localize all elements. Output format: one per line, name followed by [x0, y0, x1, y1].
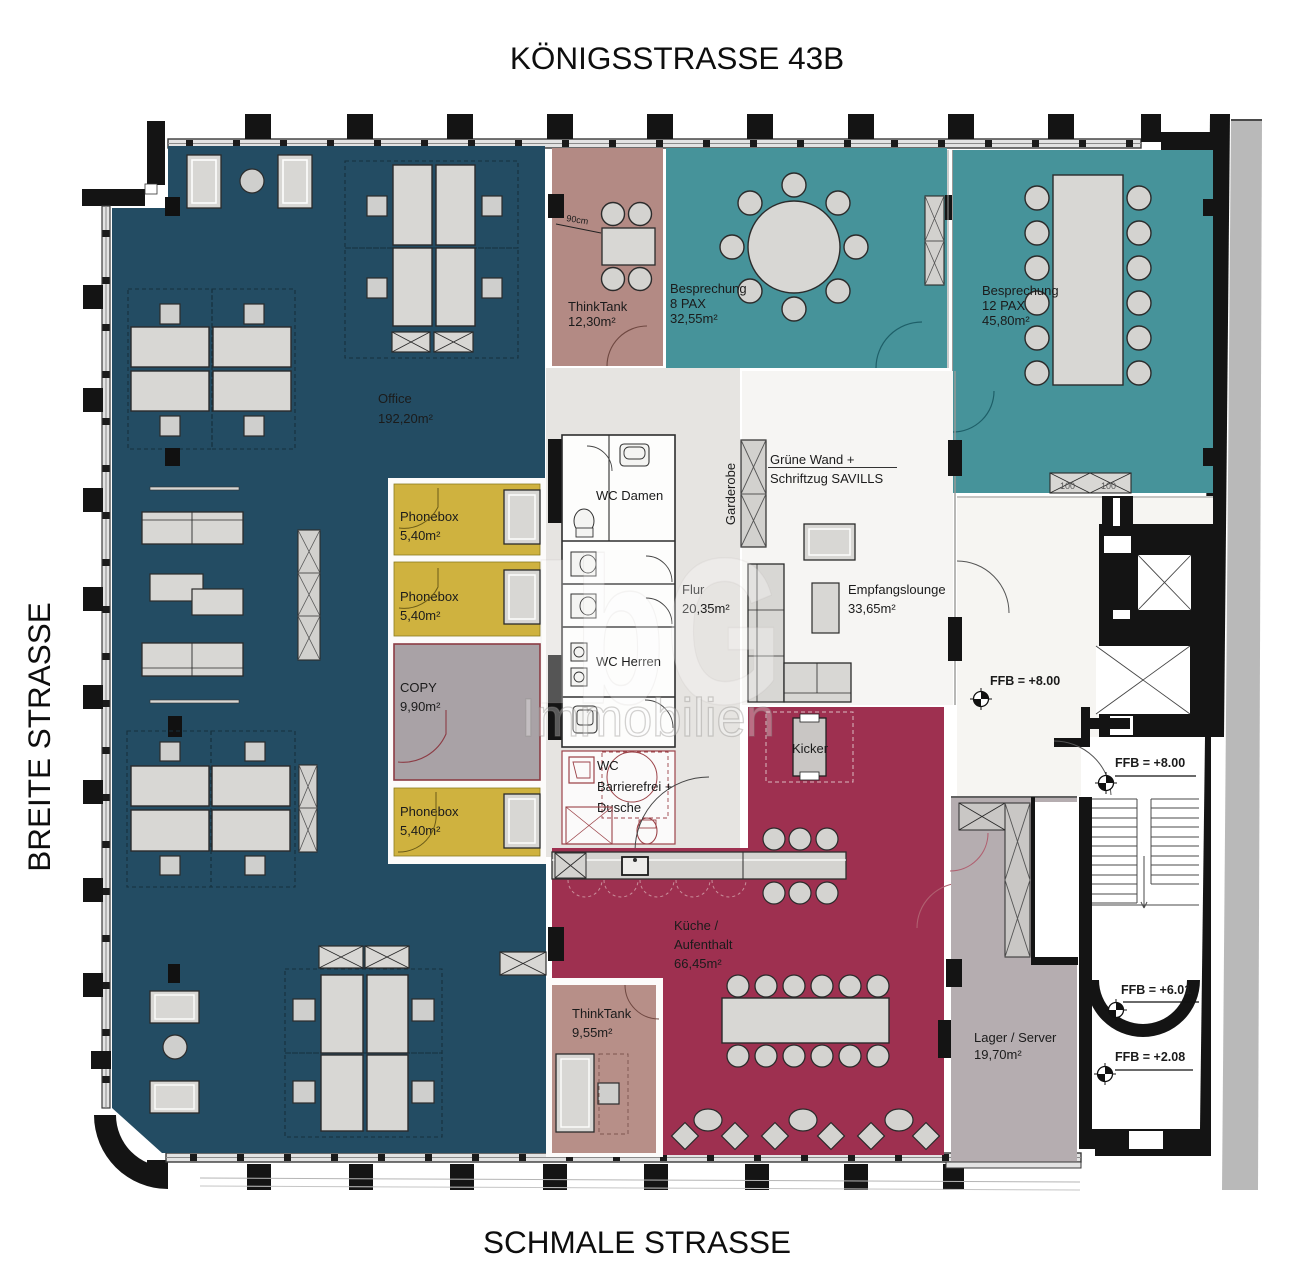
svg-text:FFB = +8.00: FFB = +8.00 — [1115, 756, 1185, 770]
svg-text:BREITE STRASSE: BREITE STRASSE — [21, 602, 57, 872]
svg-text:FFB = +8.00: FFB = +8.00 — [990, 674, 1060, 688]
svg-text:Immobilien: Immobilien — [521, 688, 775, 748]
svg-text:WC Damen: WC Damen — [596, 488, 663, 503]
svg-text:Lager / Server: Lager / Server — [974, 1030, 1057, 1045]
svg-text:COPY: COPY — [400, 680, 437, 695]
svg-text:33,65m²: 33,65m² — [848, 601, 896, 616]
svg-text:100: 100 — [1060, 481, 1075, 491]
svg-text:12 PAX: 12 PAX — [982, 298, 1025, 313]
svg-text:5,40m²: 5,40m² — [400, 528, 441, 543]
svg-text:KÖNIGSSTRASSE 43B: KÖNIGSSTRASSE 43B — [510, 40, 844, 76]
svg-text:5,40m²: 5,40m² — [400, 608, 441, 623]
svg-text:SCHMALE STRASSE: SCHMALE STRASSE — [483, 1224, 791, 1260]
svg-text:Schriftzug SAVILLS: Schriftzug SAVILLS — [770, 471, 884, 486]
svg-text:Grüne Wand +: Grüne Wand + — [770, 452, 854, 467]
svg-text:Kicker: Kicker — [792, 741, 829, 756]
svg-text:192,20m²: 192,20m² — [378, 411, 434, 426]
svg-text:Phonebox: Phonebox — [400, 589, 459, 604]
svg-text:32,55m²: 32,55m² — [670, 311, 718, 326]
svg-text:WC: WC — [597, 758, 619, 773]
svg-text:100: 100 — [1101, 481, 1116, 491]
svg-text:45,80m²: 45,80m² — [982, 313, 1030, 328]
svg-text:19,70m²: 19,70m² — [974, 1047, 1022, 1062]
svg-text:Besprechung: Besprechung — [670, 281, 747, 296]
svg-text:FFB = +2.08: FFB = +2.08 — [1115, 1050, 1185, 1064]
svg-text:Phonebox: Phonebox — [400, 804, 459, 819]
svg-text:Office: Office — [378, 391, 412, 406]
svg-text:ThinkTank: ThinkTank — [568, 299, 628, 314]
svg-text:Aufenthalt: Aufenthalt — [674, 937, 733, 952]
svg-text:8 PAX: 8 PAX — [670, 296, 706, 311]
svg-text:Empfangslounge: Empfangslounge — [848, 582, 946, 597]
svg-text:Küche /: Küche / — [674, 918, 718, 933]
svg-text:66,45m²: 66,45m² — [674, 956, 722, 971]
svg-text:Phonebox: Phonebox — [400, 509, 459, 524]
svg-text:ThinkTank: ThinkTank — [572, 1006, 632, 1021]
svg-text:Barrierefrei +: Barrierefrei + — [597, 779, 673, 794]
svg-text:9,90m²: 9,90m² — [400, 699, 441, 714]
svg-text:12,30m²: 12,30m² — [568, 314, 616, 329]
svg-text:9,55m²: 9,55m² — [572, 1025, 613, 1040]
svg-text:Besprechung: Besprechung — [982, 283, 1059, 298]
svg-text:FFB = +6.01: FFB = +6.01 — [1121, 983, 1191, 997]
